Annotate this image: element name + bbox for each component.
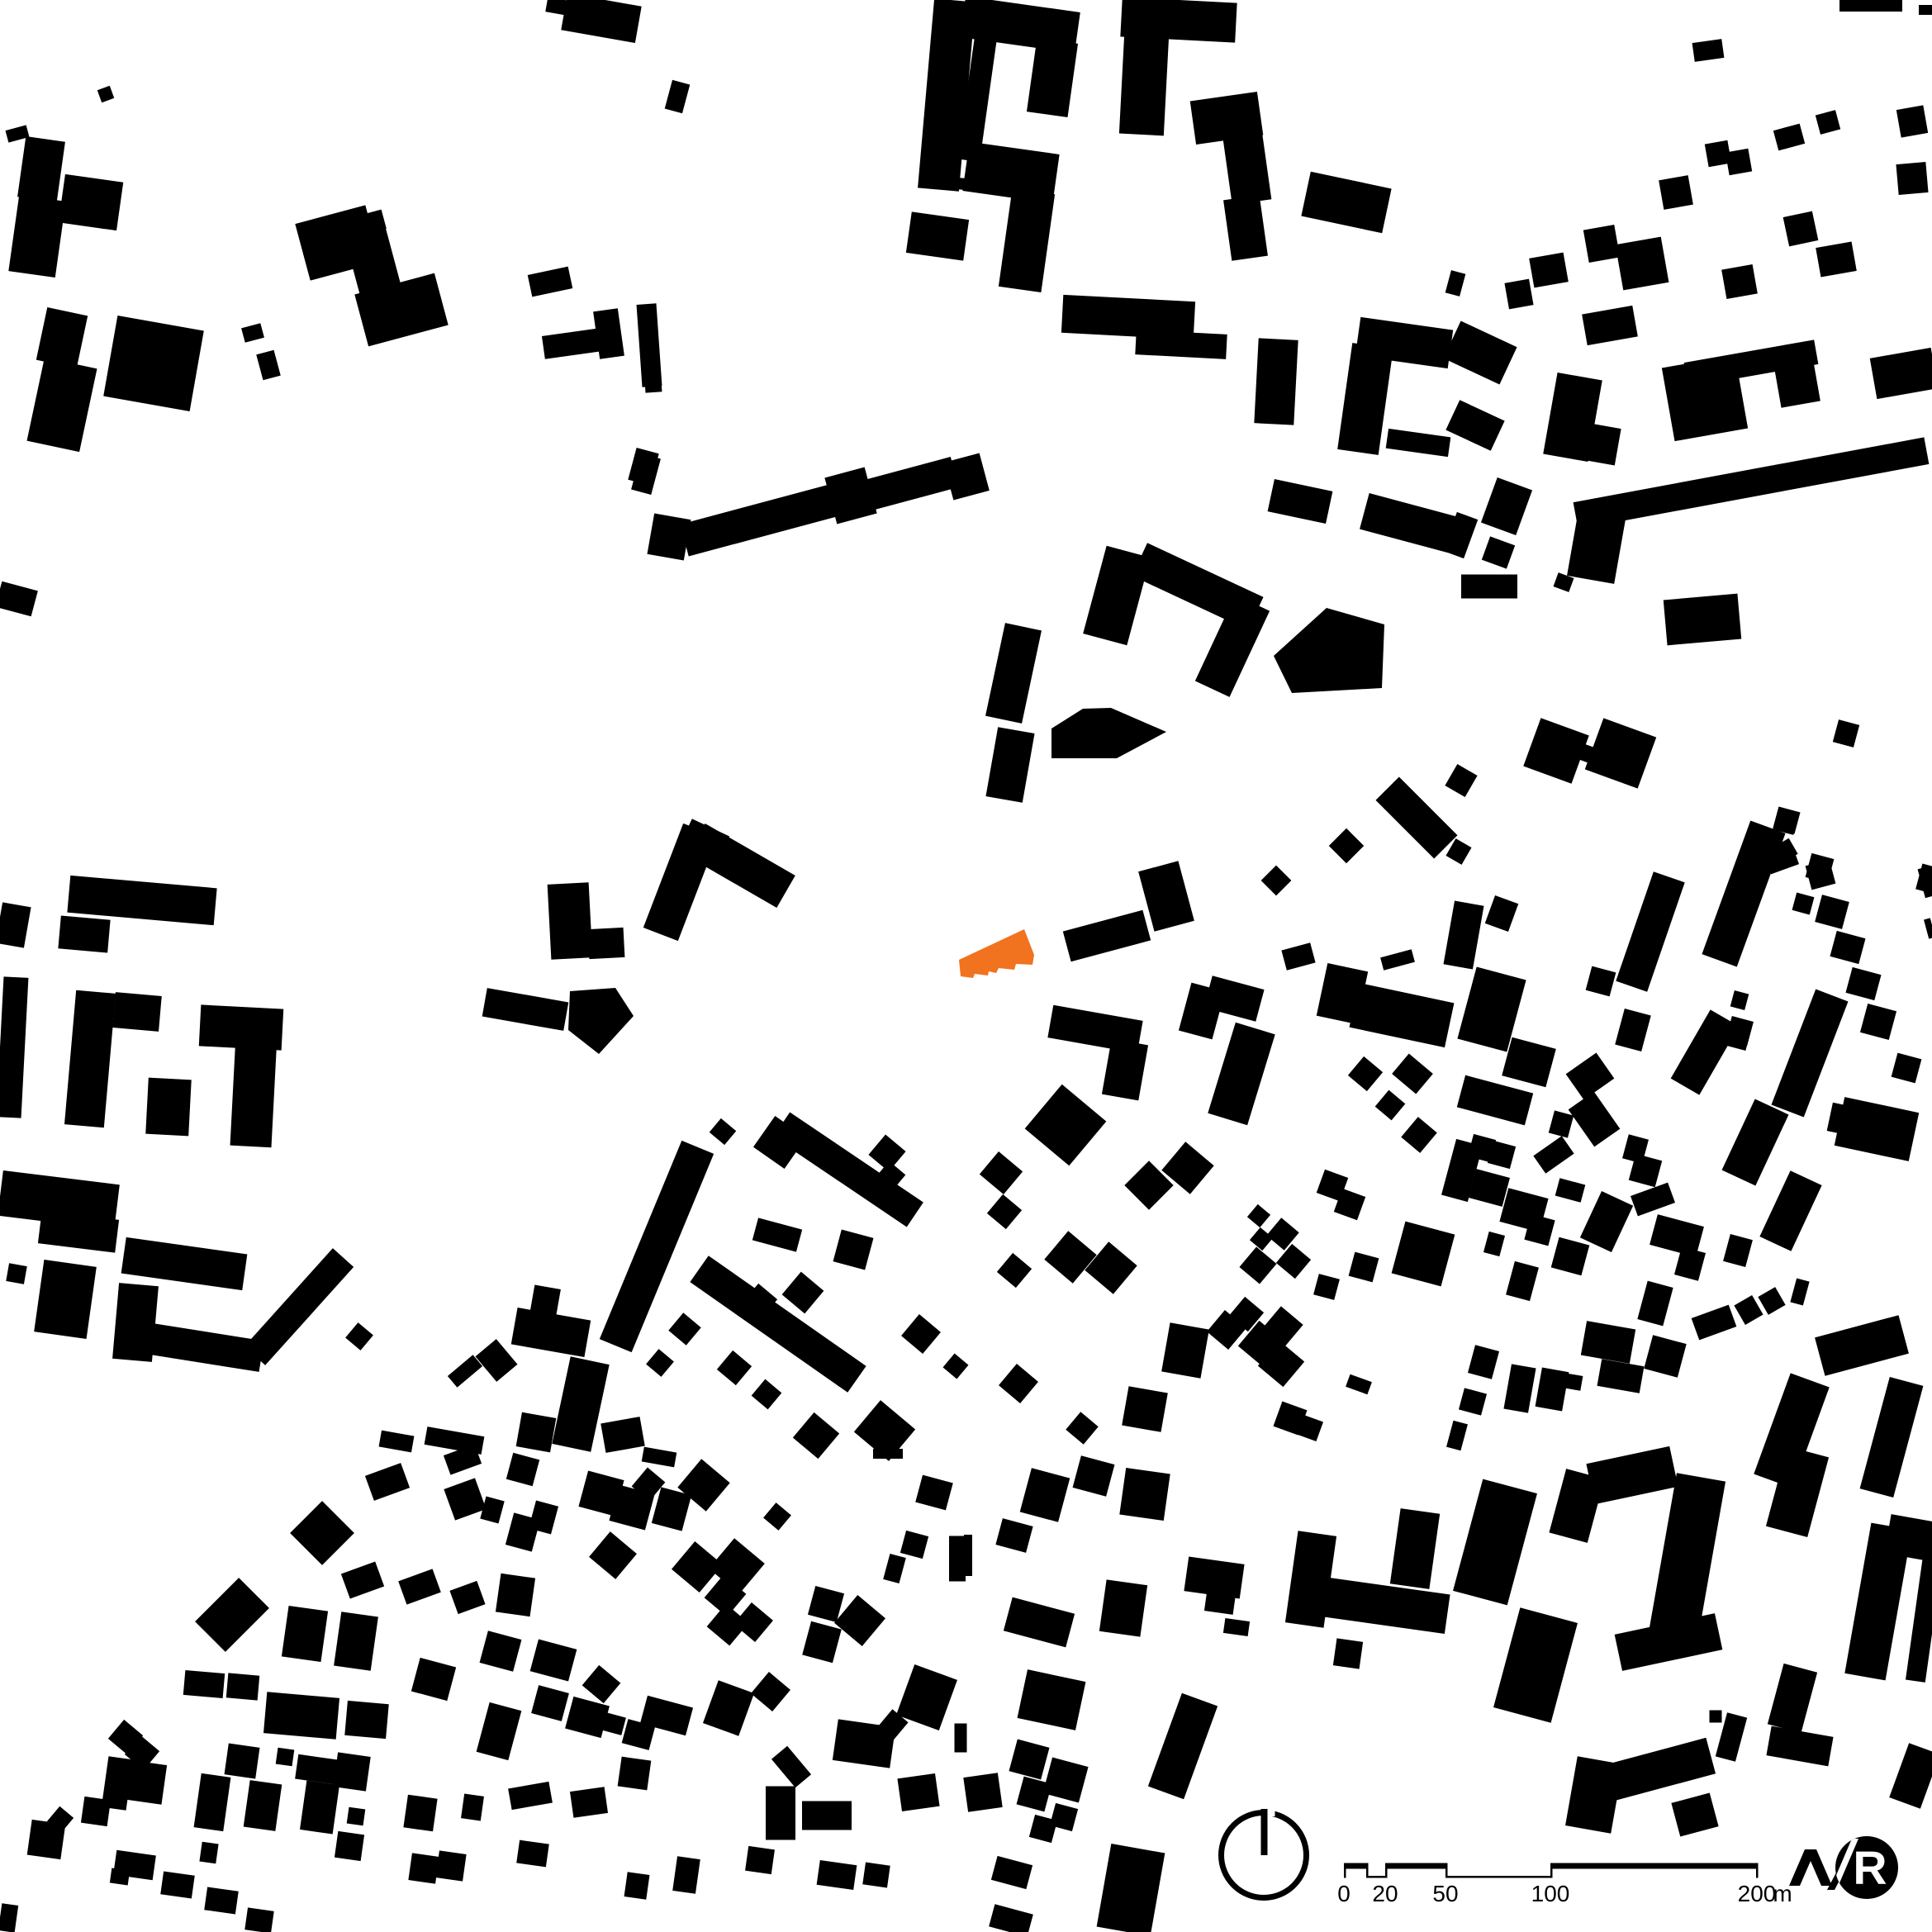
svg-text:100: 100 [1531,1881,1570,1906]
svg-text:50: 50 [1432,1881,1458,1906]
svg-text:200: 200 [1738,1881,1777,1906]
svg-text:m: m [1773,1881,1792,1906]
svg-text:20: 20 [1372,1881,1398,1906]
svg-text:0: 0 [1337,1881,1351,1906]
svg-text:R: R [1853,1842,1887,1895]
